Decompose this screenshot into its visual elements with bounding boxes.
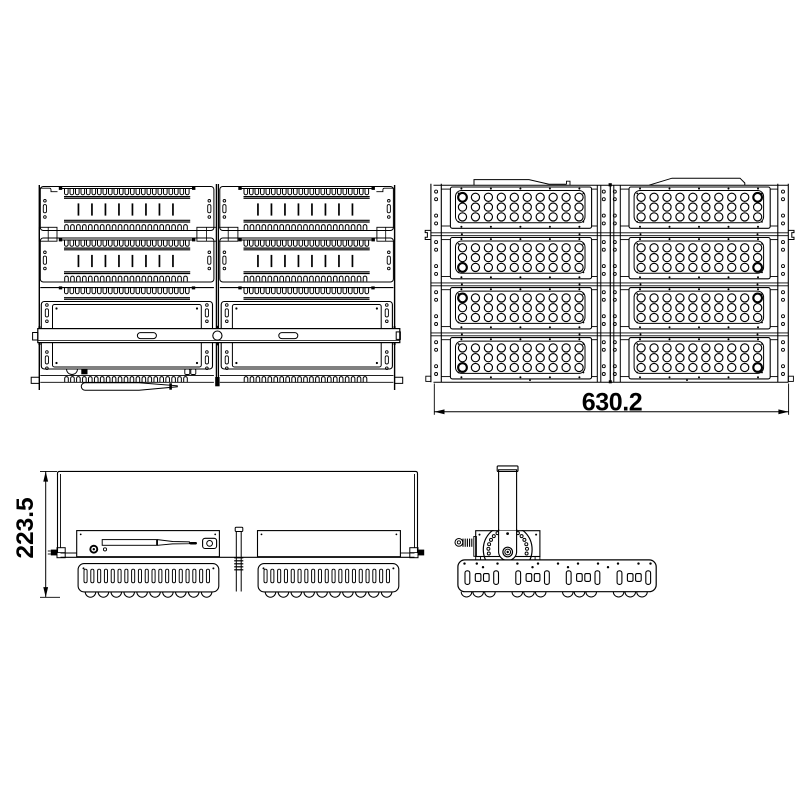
svg-text:630.2: 630.2 [582, 388, 643, 416]
svg-text:223.5: 223.5 [12, 497, 39, 558]
